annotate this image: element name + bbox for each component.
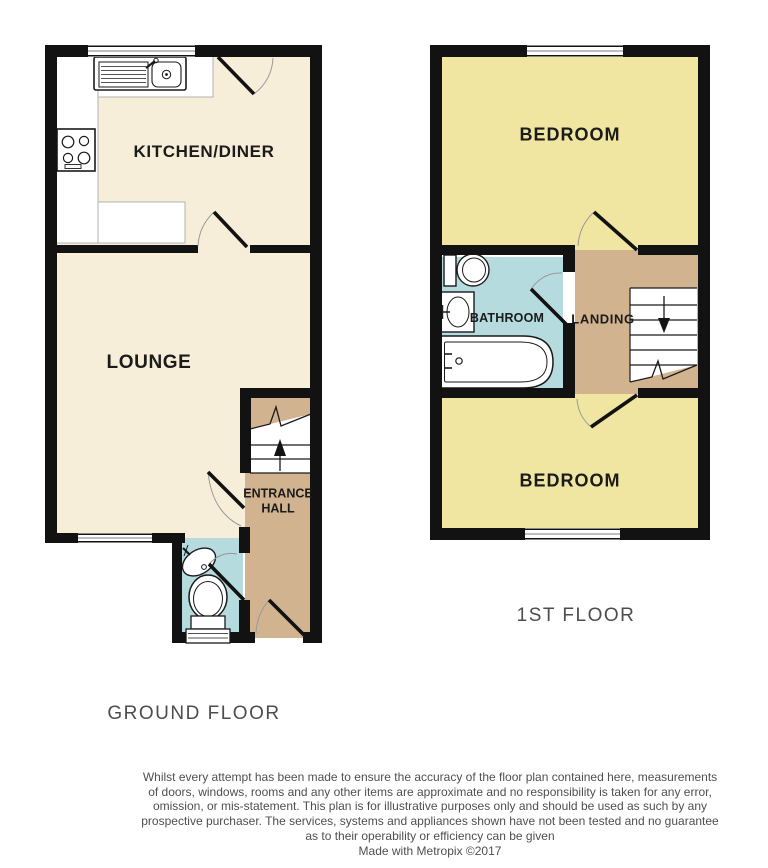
bathtub-icon <box>441 336 553 388</box>
ground-floor-title: GROUND FLOOR <box>107 703 280 725</box>
bathroom-toilet-icon <box>444 254 489 286</box>
lounge-label: LOUNGE <box>107 352 192 374</box>
disclaimer-line: omission, or mis-statement. This plan is… <box>62 799 768 814</box>
bedroom-back-floor <box>442 394 698 528</box>
kitchen-diner-label: KITCHEN/DINER <box>134 142 275 162</box>
hob-icon <box>57 129 95 171</box>
disclaimer-line: Whilst every attempt has been made to en… <box>62 770 768 785</box>
lounge-window <box>78 533 152 543</box>
wc-toilet-icon <box>189 575 227 629</box>
wc-toilet-base <box>186 629 230 643</box>
disclaimer: Whilst every attempt has been made to en… <box>62 770 768 858</box>
disclaimer-line: as to their operability or efficiency ca… <box>62 829 768 844</box>
floorplan-drawing <box>0 0 768 868</box>
entrance-hall-label: ENTRANCE HALL <box>235 487 321 516</box>
kitchen-counter-corner <box>98 202 185 243</box>
disclaimer-line: of doors, windows, rooms and any other i… <box>62 785 768 800</box>
kitchen-window <box>88 45 195 57</box>
bedroom-front-window <box>527 45 623 57</box>
bedroom-back-label: BEDROOM <box>520 471 621 492</box>
bathroom-label: BATHROOM <box>470 311 544 325</box>
first-floor-title: 1ST FLOOR <box>517 605 636 627</box>
floorplan-page: KITCHEN/DINER LOUNGE ENTRANCE HALL BEDRO… <box>0 0 768 868</box>
disclaimer-line: prospective purchaser. The services, sys… <box>62 814 768 829</box>
metropix-credit: Made with Metropix ©2017 <box>62 844 768 859</box>
bedroom-front-label: BEDROOM <box>520 125 621 146</box>
bedroom-back-window <box>525 528 620 540</box>
ground-floor-plan <box>45 45 322 643</box>
bedroom-front-floor <box>442 57 698 250</box>
kitchen-sink-icon <box>94 57 186 90</box>
landing-label: LANDING <box>571 312 634 327</box>
first-floor-plan <box>430 45 710 540</box>
